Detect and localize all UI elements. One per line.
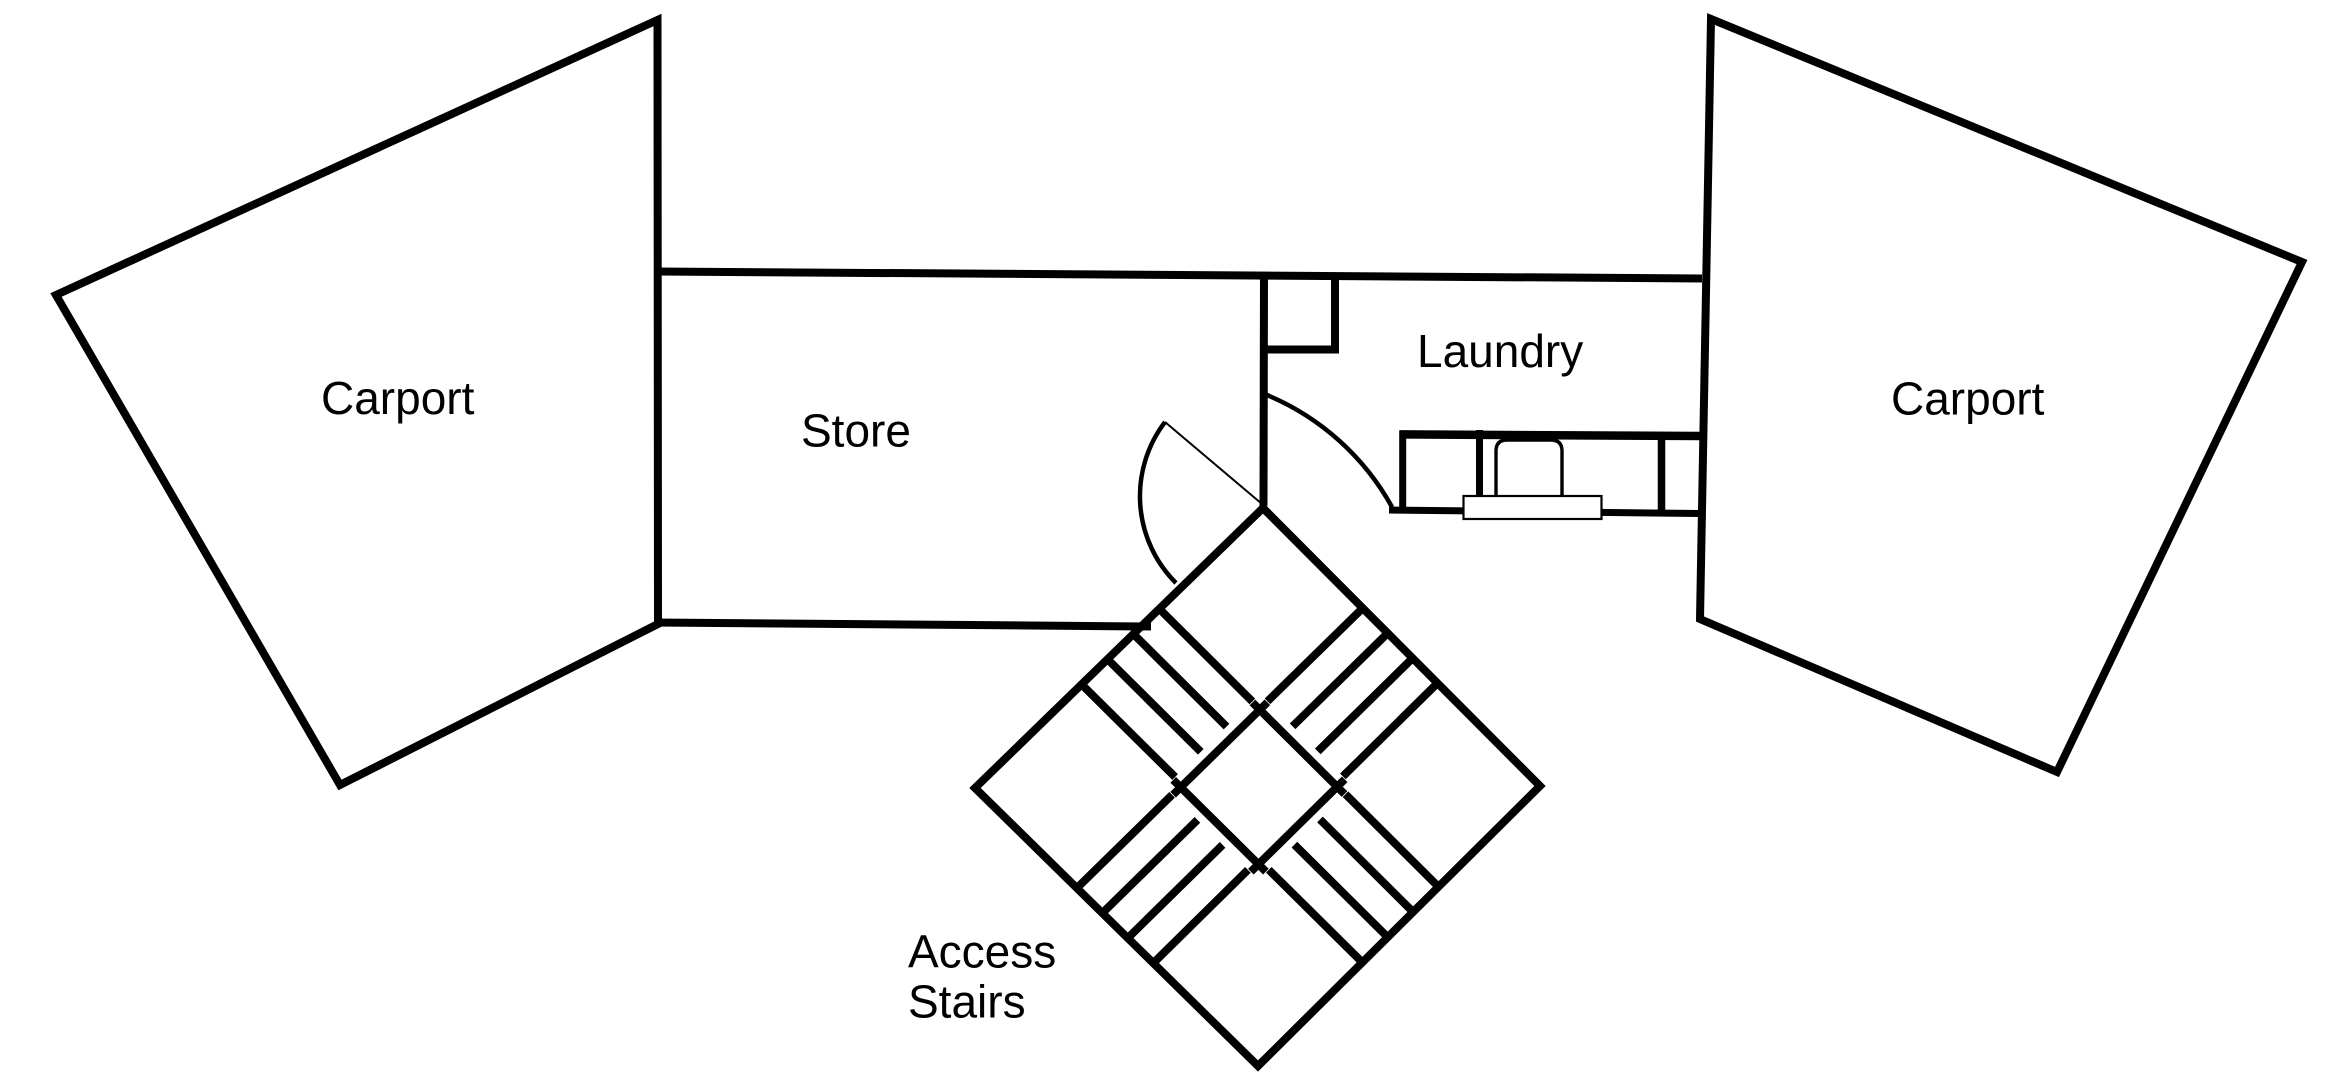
svg-text:Laundry: Laundry [1417,325,1583,377]
svg-text:Access: Access [908,926,1056,978]
svg-text:Stairs: Stairs [908,976,1026,1028]
svg-text:Carport: Carport [1891,373,2045,425]
svg-text:Carport: Carport [321,372,475,424]
svg-text:Store: Store [801,405,911,457]
